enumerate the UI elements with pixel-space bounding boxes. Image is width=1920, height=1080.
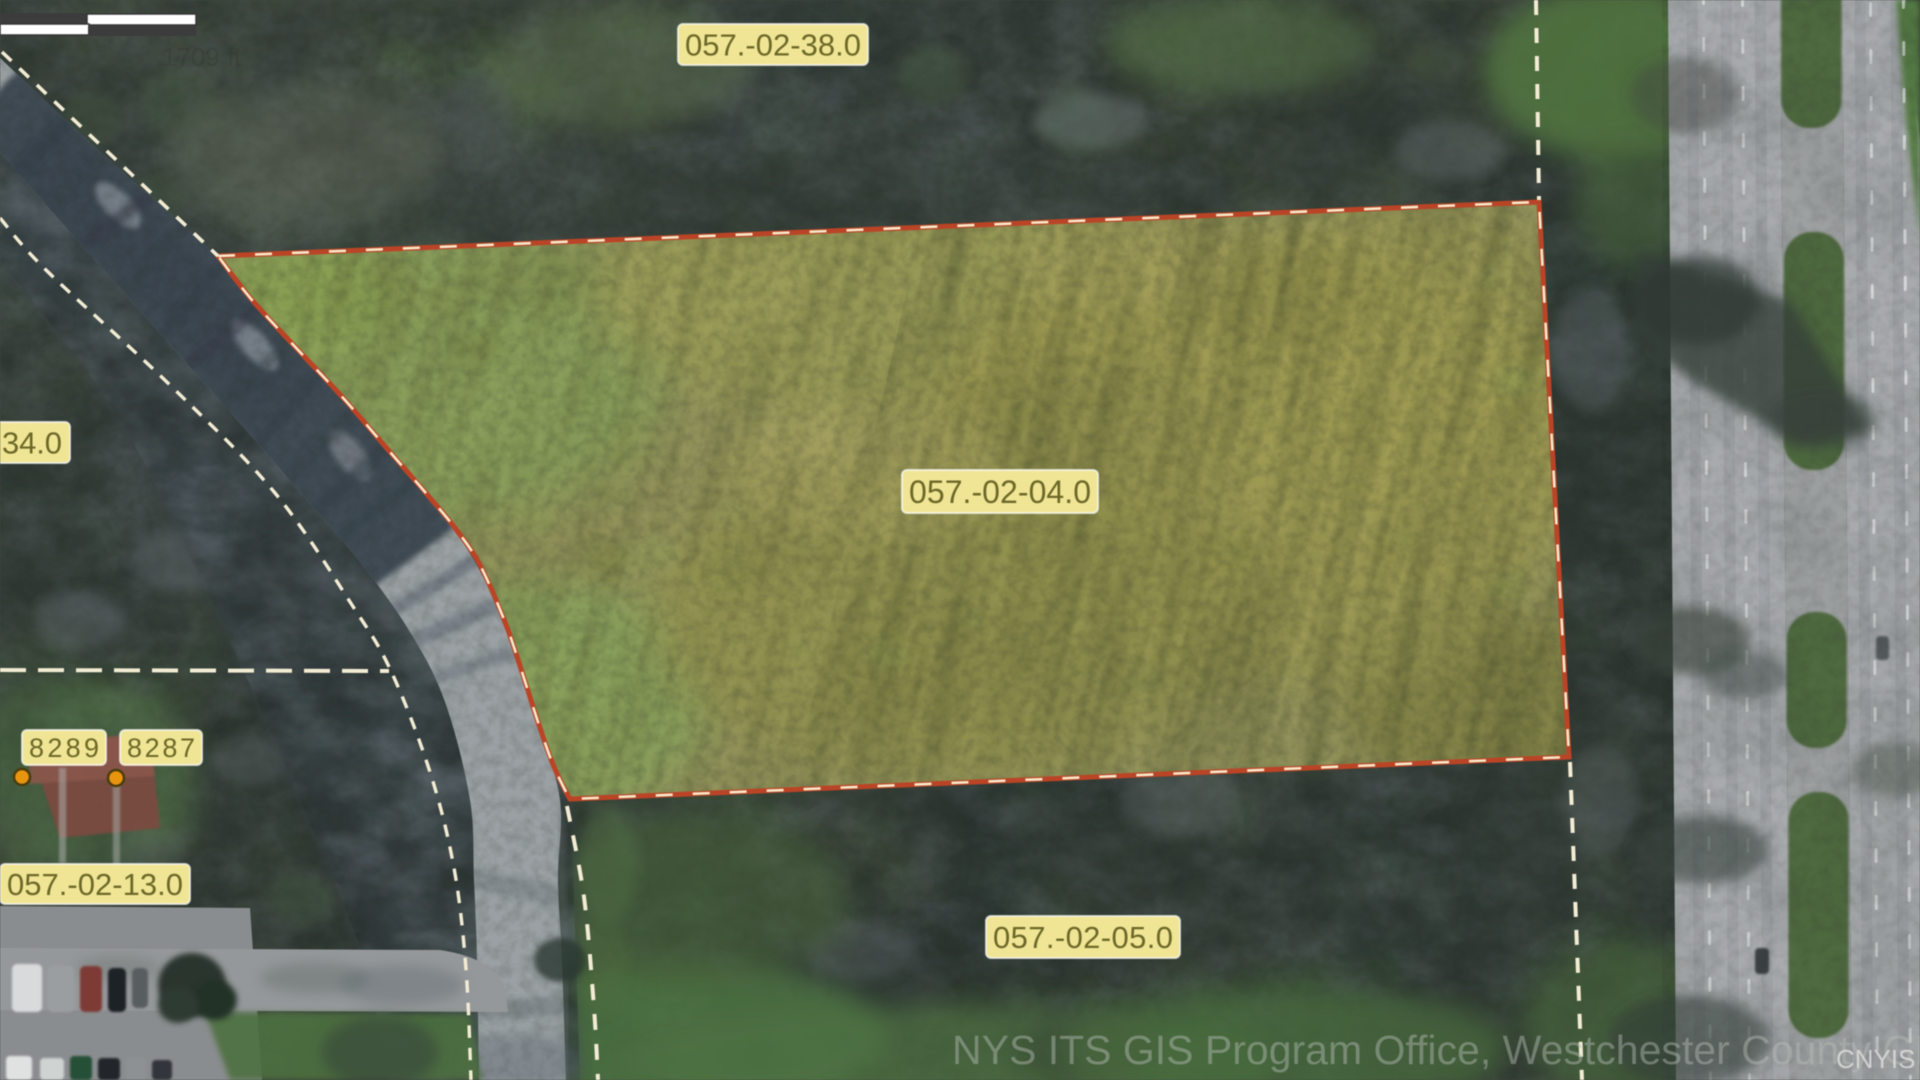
svg-text:CNYIS: CNYIS — [1836, 1044, 1915, 1074]
svg-text:057.-02-04.0: 057.-02-04.0 — [909, 474, 1091, 510]
svg-text:1709 ft: 1709 ft — [162, 42, 242, 72]
svg-text:057.-02-05.0: 057.-02-05.0 — [993, 920, 1173, 955]
svg-text:NYS ITS GIS Program Office, We: NYS ITS GIS Program Office, Westchester … — [952, 1027, 1920, 1073]
svg-text:057.-02-13.0: 057.-02-13.0 — [7, 867, 183, 902]
svg-text:057.-02-38.0: 057.-02-38.0 — [685, 28, 861, 63]
svg-text:34.0: 34.0 — [2, 426, 62, 461]
